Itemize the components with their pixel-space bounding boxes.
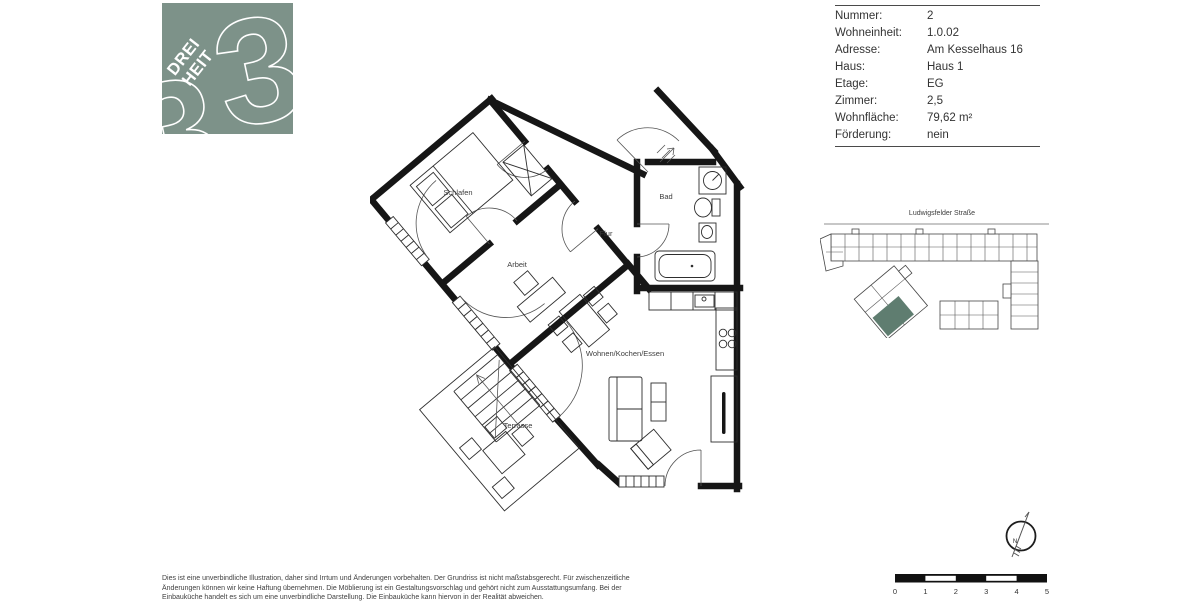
scale-label-5: 5 xyxy=(1045,587,1049,596)
site-plan: Ludwigsfelder Straße xyxy=(820,198,1052,338)
room-label-arbeit: Arbeit xyxy=(507,260,528,269)
scale-label-0: 0 xyxy=(893,587,897,596)
building-block-south xyxy=(940,301,998,329)
street-label: Ludwigsfelder Straße xyxy=(909,210,975,217)
toilet xyxy=(695,198,721,217)
bathtub xyxy=(655,251,715,281)
compass-north-label: N xyxy=(1013,539,1017,545)
bad-door-arc xyxy=(637,224,669,257)
stove xyxy=(719,329,736,348)
info-row-adresse: Adresse:Am Kesselhaus 16 xyxy=(835,42,1040,59)
info-row-etage: Etage:EG xyxy=(835,76,1040,93)
info-row-nummer: Nummer:2 xyxy=(835,8,1040,25)
living-door-arc xyxy=(665,450,701,486)
rotated-wing xyxy=(370,99,716,470)
disclaimer-line-3: Einbauküche handelt es sich um eine unve… xyxy=(162,593,808,603)
dreiheit-logo: 3 3 DREI HEIT xyxy=(162,3,293,134)
scale-label-4: 4 xyxy=(1015,587,1019,596)
scale-label-3: 3 xyxy=(984,587,988,596)
kitchen-counter xyxy=(649,292,737,442)
disclaimer-line-2: Änderungen können wir keine Haftung über… xyxy=(162,584,808,594)
room-label-wohnen: Wohnen/Kochen/Essen xyxy=(586,349,664,358)
room-label-schlafen: Schlafen xyxy=(443,188,472,197)
sofa xyxy=(609,377,642,441)
info-row-wohnflaeche: Wohnfläche:79,62 m² xyxy=(835,110,1040,127)
disclaimer-line-1: Dies ist eine unverbindliche Illustratio… xyxy=(162,574,808,584)
living-window xyxy=(619,476,664,487)
info-row-haus: Haus:Haus 1 xyxy=(835,59,1040,76)
washing-machine xyxy=(699,167,726,194)
compass-icon: N xyxy=(1007,512,1036,557)
info-row-wohneinheit: Wohneinheit:1.0.02 xyxy=(835,25,1040,42)
wing-floor xyxy=(371,100,628,364)
scale-bar: 0 1 2 3 4 5 xyxy=(893,574,1049,596)
room-label-bad: Bad xyxy=(659,192,672,201)
apartment-info-table: Nummer:2 Wohneinheit:1.0.02 Adresse:Am K… xyxy=(835,5,1040,147)
highlighted-building xyxy=(854,260,934,338)
tall-cabinet xyxy=(711,376,737,442)
room-label-flur: Flur xyxy=(600,229,613,238)
terrace-group xyxy=(420,347,580,511)
lounge-chair xyxy=(631,429,671,469)
building-strip-north xyxy=(820,229,1037,271)
footer-disclaimer: Dies ist eine unverbindliche Illustratio… xyxy=(162,574,808,603)
room-label-terrasse: Terrasse xyxy=(504,421,533,430)
building-column-east xyxy=(1003,261,1038,329)
side-table xyxy=(651,383,666,421)
terrace-outline xyxy=(420,347,580,511)
sink xyxy=(699,223,716,242)
floorplan-drawing: Schlafen Arbeit Flur Bad Wohnen/Kochen/E… xyxy=(370,80,750,520)
map-tools: N 0 1 2 3 4 5 xyxy=(878,508,1052,600)
scale-label-2: 2 xyxy=(954,587,958,596)
info-row-zimmer: Zimmer:2,5 xyxy=(835,93,1040,110)
floorplan-sheet: { "colors": { "logo_green": "#7D9289", "… xyxy=(0,0,1200,600)
scale-label-1: 1 xyxy=(923,587,927,596)
info-row-foerderung: Förderung:nein xyxy=(835,127,1040,144)
